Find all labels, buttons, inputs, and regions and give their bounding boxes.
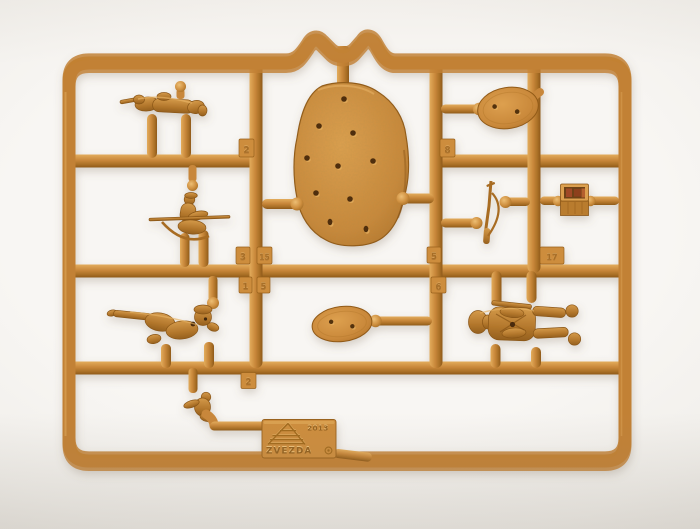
musket-stock xyxy=(483,228,491,244)
figure-body xyxy=(469,300,581,345)
sprue-graphic: 2 8 3 15 1 5 5 xyxy=(0,0,700,529)
part-tab: 5 xyxy=(257,277,270,293)
part-tab: 2 xyxy=(241,373,256,389)
brand-name: ZVEZDA xyxy=(266,447,312,457)
gate-bulb xyxy=(397,192,410,205)
crate-interior-detail xyxy=(574,189,581,197)
prone-rifleman-figure xyxy=(120,81,207,158)
brand-year: 2013 xyxy=(307,424,328,432)
figure-body xyxy=(149,193,230,236)
part-tab: 5 xyxy=(427,247,441,263)
runner-h3 xyxy=(63,362,626,375)
musket-with-sling-part xyxy=(441,181,530,244)
part-tab: 2 xyxy=(239,139,254,157)
part-tab: 6 xyxy=(431,277,446,293)
runner-h2 xyxy=(63,265,626,278)
part-tab: 3 xyxy=(236,247,250,264)
sprue-post xyxy=(204,342,214,368)
crawling-soldier-figure xyxy=(106,276,220,368)
sprue-post xyxy=(527,271,537,303)
sprue-post xyxy=(189,368,198,393)
part-tab: 1 xyxy=(239,277,252,293)
tab-number: 2 xyxy=(243,146,249,156)
textured-display-base xyxy=(262,83,434,246)
photo-canvas: 2 8 3 15 1 5 5 xyxy=(0,0,700,529)
tab-number: 5 xyxy=(261,282,267,292)
crate-interior-detail xyxy=(582,189,586,198)
sprue-post xyxy=(147,114,157,158)
tab-number: 15 xyxy=(259,253,269,262)
figure-body xyxy=(120,93,207,117)
tab-number: 8 xyxy=(444,146,450,156)
sprue-post xyxy=(161,344,171,368)
part-tab: 8 xyxy=(440,139,455,157)
equipment-crate-part xyxy=(540,184,619,216)
tab-number: 3 xyxy=(240,253,246,263)
tab-number: 17 xyxy=(546,253,557,262)
oval-base-bottom xyxy=(310,303,432,345)
vent-ball xyxy=(175,81,186,92)
runner-h1-left xyxy=(63,155,259,168)
gate-bulb xyxy=(291,198,304,211)
oval-base-top xyxy=(441,83,541,133)
sprue-post xyxy=(531,347,541,368)
tab-number: 1 xyxy=(243,282,249,292)
tab-number: 6 xyxy=(436,283,442,293)
runner-v1 xyxy=(250,63,263,368)
tab-number: 5 xyxy=(431,252,437,262)
crate-interior-detail xyxy=(566,189,572,198)
base-plate-texture xyxy=(294,83,409,246)
sprue-post xyxy=(181,114,191,158)
vent-ball xyxy=(187,180,198,191)
brand-plate: 2013 2013 ZVEZDA ZVEZDA xyxy=(262,420,372,463)
crate-front xyxy=(561,201,589,216)
face-detail xyxy=(204,317,207,320)
gate-bulb xyxy=(471,217,483,229)
standing-soldier-figure xyxy=(469,271,581,368)
hand-hole xyxy=(510,322,515,327)
archer-figure xyxy=(149,165,230,267)
runner-to-brand-plate xyxy=(210,422,266,431)
part-tab: 15 xyxy=(257,247,272,264)
part-tab: 17 xyxy=(540,247,564,264)
oval-base-shape xyxy=(310,303,374,345)
vent-stub xyxy=(189,165,197,182)
gate-bulb xyxy=(500,196,512,208)
sprue: 2 8 3 15 1 5 5 xyxy=(63,36,627,465)
figure-body xyxy=(106,305,220,345)
tab-number: 2 xyxy=(246,378,252,388)
sprue-post xyxy=(491,344,501,368)
